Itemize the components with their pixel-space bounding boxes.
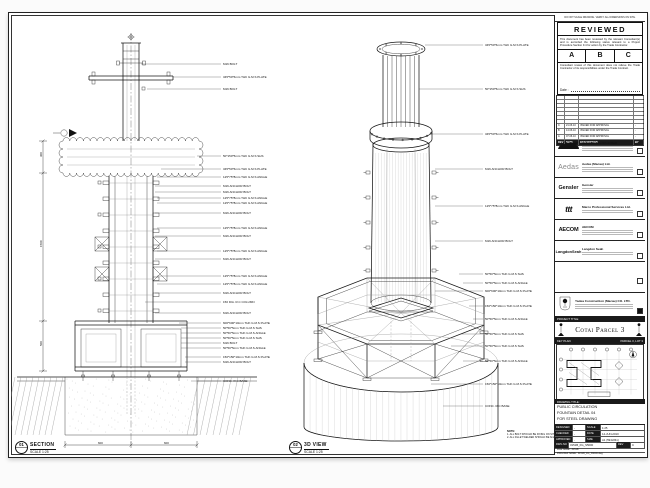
view-name: 3D VIEW [304, 442, 329, 450]
contractor-name: Yadea Construction (Macau) CO. LTD. [575, 300, 639, 303]
consultant-list: Venetian Orient Limited Aedas Aedas (Mac… [555, 136, 645, 262]
annotation-label: 50*150*5mm THK G.M.S SHS [223, 154, 263, 158]
file-ref-row: DWG REF NAME : 3151B_FG_S5000.dwg [555, 452, 645, 456]
contractor-block: Yadea Construction (Macau) CO. LTD. [555, 292, 645, 317]
view-name: SECTION [30, 442, 56, 450]
annotation-label: 50*50*5mm THK G.M.S ANGLE [485, 359, 528, 363]
ornament-icon [558, 323, 564, 336]
annotation-label: 50*50*5mm THK G.M.S ANGLE [485, 281, 528, 285]
notes-block: NOTE: 1. ALL BOLT SHOULD BE FIXING ON SI… [507, 430, 553, 439]
annotation-label: 300 [39, 152, 43, 157]
aedas-logo: Aedas [555, 164, 582, 171]
consultant-name: Venetian Orient Limited [582, 142, 639, 145]
annotation-label: 125*75*8mm THK G.M.S ANGLE [223, 201, 267, 205]
yadea-shield-logo-icon [559, 296, 571, 311]
status-checkbox-filled [637, 308, 643, 314]
annotation-label: M16 ANCHOR BOLT [223, 291, 251, 295]
annotation-label: 500 [39, 341, 43, 346]
annotation-label: M16 ANCHOR BOLT [223, 184, 251, 188]
address-lines [582, 230, 639, 234]
annotation-label: 600 [98, 441, 103, 445]
section-view-label: 01 SECTION SCALE 1:25 [15, 441, 56, 454]
status-c: C [615, 50, 642, 62]
status-checkbox [637, 190, 643, 196]
view-number-bubble: 01 [15, 441, 28, 454]
consultant-name: AECOM [582, 226, 639, 229]
annotation-label: 125*75*8mm THK G.M.S ANGLE [223, 196, 267, 200]
note-line: 2. ALL FILLET WELDED SHOULD BE 6mm THK. [507, 436, 553, 439]
consultant-name: Aedas (Macau) Ltd. [582, 163, 639, 166]
annotation-label: 50*50*5mm THK G.M.S SHS [223, 336, 262, 340]
gensler-logo: Gensler [555, 185, 582, 191]
project-title-label: PROJECT TITLE [557, 317, 578, 321]
title-block: DO NOT SCALE DRAWING. VERIFY ALL DIMENSI… [554, 15, 645, 455]
annotation-label: 600*600*10mm THK G.M.S PLATE [223, 321, 270, 325]
annotation-label: 50*50*5mm THK G.M.S SHS [485, 272, 524, 276]
annotation-label: 125*75*8mm THK G.M.S ANGLE [485, 204, 529, 208]
annotation-label: 345*50*6mm THK G.M.S PLATE [223, 167, 267, 171]
reviewed-stamp: REVIEWED This document has been reviewed… [557, 22, 643, 95]
annotation-label: 345*50*6mm THK G.M.S PLATE [485, 132, 529, 136]
annotation-label: 150 DIA. R.C COLUMN [223, 300, 255, 304]
annotation-label: 150*150*10mm THK G.M.S PLATE [223, 355, 270, 359]
desktop-background: { "sheet": { "views": [ {"num": "01", "n… [0, 0, 650, 488]
status-checkbox [637, 232, 643, 238]
drawing-title-label: DRAWING TITLE: [557, 400, 580, 404]
annotation-label: 50*50*5mm THK G.M.S ANGLE [223, 346, 266, 350]
status-b: B [586, 50, 614, 62]
consultant-name: Gensler [582, 184, 639, 187]
annotation-label: 125*75*8mm THK G.M.S ANGLE [223, 226, 267, 230]
key-plan-drawing [557, 345, 643, 399]
empty-consultant-block [555, 256, 645, 293]
annotation-label: 150*150*10mm THK G.M.S PLATE [485, 382, 532, 386]
date-line [571, 87, 640, 92]
annotation-label: 50*50*5mm THK G.M.S SHS [485, 332, 524, 336]
view-number: 01 [19, 442, 24, 447]
annotation-label: 50*50*5mm THK G.M.S ANGLE [485, 317, 528, 321]
annotation-label: M16 ANCHOR BOLT [223, 311, 251, 315]
annotation-label: M16 BOLT [223, 62, 237, 66]
address-lines [575, 304, 639, 308]
annotation-label: 125*75*8mm THK G.M.S ANGLE [223, 282, 267, 286]
view3d-label: 02 3D VIEW SCALE 1:25 [289, 441, 329, 454]
reviewed-paragraph-2: Consultant review of this document does … [558, 63, 642, 72]
annotation-label: 600*600*10mm THK G.M.S PLATE [485, 289, 532, 293]
key-plan [556, 344, 644, 400]
key-plan-legend-box [588, 392, 610, 397]
ttt-logo: ttt [555, 204, 582, 214]
approval-fields: DESIGNED-SCALE1:25 CHECKED-DATE14-JUN-20… [555, 424, 645, 443]
consultant-name: Marco Professional Services Ltd. [582, 206, 639, 209]
drawing-title: PUBLIC CIRCULATION FOUNTAIN DETAIL 04 FO… [557, 404, 643, 425]
annotation-label: M16 ANCHOR BOLT [223, 234, 251, 238]
annotation-label: 50*50*5mm THK G.M.S SHS [485, 344, 524, 348]
consultant-block-gensler: Gensler Gensler [555, 178, 645, 199]
annotation-label: M16 BOLT [223, 87, 237, 91]
address-lines [582, 188, 639, 192]
address-lines [582, 210, 639, 212]
annotation-label: 150*150*10mm THK G.M.S PLATE [485, 304, 532, 308]
view-scale: SCALE 1:25 [30, 450, 56, 455]
address-lines [582, 252, 639, 254]
annotation-label: M16 ANCHOR BOLT [223, 211, 251, 215]
ornament-icon [636, 323, 642, 336]
status-checkbox [637, 148, 643, 154]
annotation-label: 125*75*8mm THK G.M.S ANGLE [223, 175, 267, 179]
view-scale: SCALE 1:25 [304, 450, 329, 455]
consultant-name: Langdon Seah [582, 248, 639, 251]
reviewed-title: REVIEWED [558, 23, 642, 36]
status-options: A B C [558, 49, 642, 63]
view-number: 02 [293, 442, 298, 447]
consultant-block-aecom: AECOM AECOM [555, 220, 645, 241]
status-checkbox [637, 211, 643, 217]
annotation-label: M16 BOLT [223, 341, 237, 345]
annotation-label: 600 [164, 441, 169, 445]
annotation-label: 50*50*5mm THK G.M.S SHS [223, 326, 262, 330]
address-lines [582, 146, 639, 150]
langdonseah-logo: LangdonSeah [555, 249, 582, 254]
annotation-label: 1500 [39, 240, 43, 247]
consultant-block-aedas: Aedas Aedas (Macau) Ltd. [555, 157, 645, 178]
address-lines [582, 167, 639, 171]
annotation-label: M16 ANCHOR BOLT [485, 239, 513, 243]
consultant-block-venetian: Venetian Orient Limited [555, 136, 645, 157]
winged-lion-logo-icon [556, 140, 581, 151]
annotation-label: M16 ANCHOR BOLT [485, 167, 513, 171]
annotation-label: M16 ANCHOR BOLT [223, 257, 251, 261]
status-checkbox [637, 169, 643, 175]
key-plan-parcel-label: PARCEL 3, LOT 3 [621, 339, 644, 343]
project-title: Cotai Parcel 3 [575, 326, 625, 334]
annotation-label: CONC. R.C BASE [485, 404, 510, 408]
annotation-label: 50*150*5mm THK G.M.S SHS [485, 87, 525, 91]
drawing-canvas: 6006003001500500M16 BOLT345*50*6mm THK G… [11, 15, 553, 453]
sheet-top-note: DO NOT SCALE DRAWING. VERIFY ALL DIMENSI… [555, 15, 645, 22]
consultant-block-marco: ttt Marco Professional Services Ltd. [555, 199, 645, 220]
date-label: Date : [560, 88, 569, 92]
status-checkbox [637, 278, 643, 284]
drawing-sheet: 6006003001500500M16 BOLT345*50*6mm THK G… [8, 12, 648, 458]
annotation-label: 345*50*6mm THK G.M.S PLATE [223, 75, 267, 79]
annotation-label: M16 ANCHOR BOLT [223, 190, 251, 194]
annotation-label: M16 ANCHOR BOLT [223, 360, 251, 364]
annotation-label: 125*75*8mm THK G.M.S ANGLE [223, 249, 267, 253]
reviewed-paragraph-1: This document has been reviewed by the r… [558, 36, 642, 49]
status-a: A [558, 50, 586, 62]
annotation-label: 345*50*6mm THK G.M.S PLATE [485, 43, 529, 47]
aecom-logo: AECOM [555, 227, 582, 233]
annotation-label: CONC. R.C BASE [223, 379, 248, 383]
annotation-label: 50*50*5mm THK G.M.S ANGLE [223, 331, 266, 335]
project-title-row: Cotai Parcel 3 [555, 322, 645, 338]
view-number-bubble: 02 [289, 441, 302, 454]
annotation-label: 125*75*8mm THK G.M.S ANGLE [223, 274, 267, 278]
key-plan-label: KEY PLAN [557, 339, 571, 343]
